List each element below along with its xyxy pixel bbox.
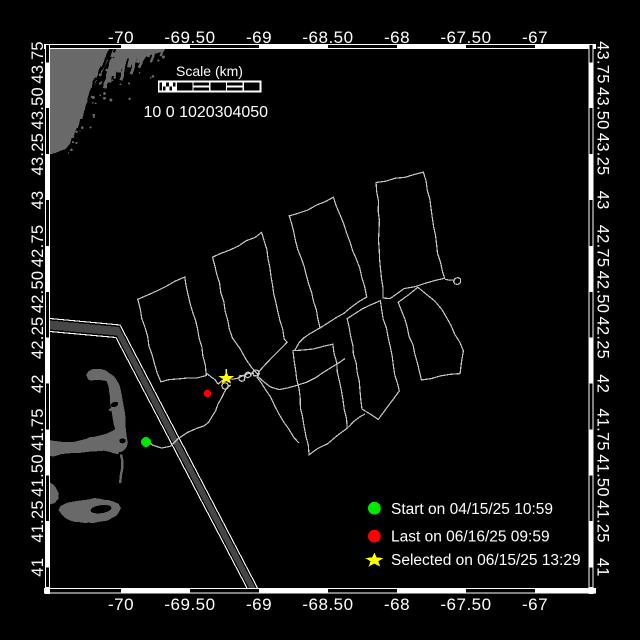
svg-text:43.75: 43.75 [29,41,47,84]
svg-text:-69: -69 [246,595,272,614]
svg-text:-67: -67 [522,28,548,47]
svg-text:43.75: 43.75 [594,41,612,84]
svg-text:43.50: 43.50 [594,87,612,130]
svg-text:42.25: 42.25 [594,317,612,360]
svg-text:-70: -70 [108,28,134,47]
svg-text:41: 41 [594,558,612,577]
svg-text:-67.50: -67.50 [440,28,491,47]
svg-text:41.25: 41.25 [594,500,612,543]
svg-text:-69.50: -69.50 [164,595,215,614]
svg-text:Start on 04/15/25 10:59: Start on 04/15/25 10:59 [391,501,553,518]
svg-text:43.50: 43.50 [29,87,47,130]
svg-text:42: 42 [29,374,47,393]
svg-text:41.75: 41.75 [29,408,47,451]
svg-text:Last on 06/16/25 09:59: Last on 06/16/25 09:59 [391,529,550,546]
svg-text:43.25: 43.25 [594,133,612,176]
svg-text:-68: -68 [384,28,410,47]
svg-text:42.75: 42.75 [29,225,47,268]
svg-text:41.50: 41.50 [594,454,612,497]
svg-text:42.75: 42.75 [594,225,612,268]
svg-text:-67: -67 [522,595,548,614]
svg-text:-68.50: -68.50 [302,595,353,614]
svg-text:42.50: 42.50 [29,271,47,314]
svg-text:-69.50: -69.50 [164,28,215,47]
svg-text:41.50: 41.50 [29,454,47,497]
svg-text:42.25: 42.25 [29,317,47,360]
svg-text:43: 43 [29,191,47,210]
svg-text:10 0 1020304050: 10 0 1020304050 [144,104,269,121]
svg-text:41.25: 41.25 [29,500,47,543]
svg-text:-69: -69 [246,28,272,47]
svg-text:Selected on 06/15/25 13:29: Selected on 06/15/25 13:29 [391,552,581,569]
svg-text:-68: -68 [384,595,410,614]
svg-text:42.50: 42.50 [594,271,612,314]
svg-text:43: 43 [594,191,612,210]
svg-text:41: 41 [29,558,47,577]
svg-text:41.75: 41.75 [594,408,612,451]
svg-text:Scale (km): Scale (km) [176,63,243,79]
svg-text:-67.50: -67.50 [440,595,491,614]
svg-text:-68.50: -68.50 [302,28,353,47]
svg-text:-70: -70 [108,595,134,614]
svg-text:43.25: 43.25 [29,133,47,176]
svg-text:42: 42 [594,374,612,393]
